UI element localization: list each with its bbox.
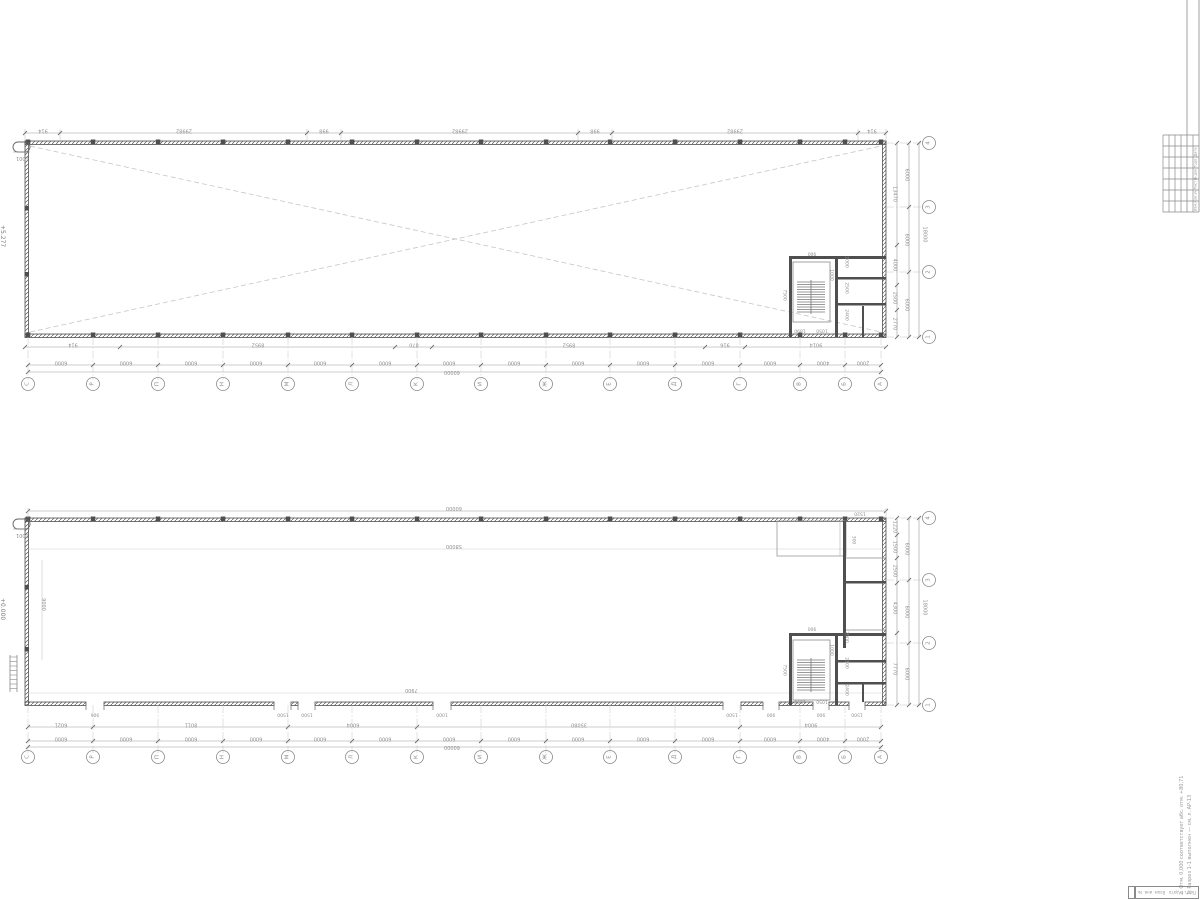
note-line-1: 1. Разрез 1-1 выполнен — см. л. АР-13: [1187, 793, 1194, 895]
titleblock-strip: Взам. инв. № Подп. и дата: [1128, 886, 1199, 899]
note-line-2: 2. Отм. 0,000 соответствует абс. отм. +8…: [1179, 793, 1186, 895]
top-total-dim-lower: 60000: [446, 505, 462, 510]
corner-detail-label-lower: 1001: [16, 532, 29, 537]
strip-cell-podp: Подп. и дата: [1167, 887, 1198, 898]
drawing-sheet: 9142998299829982998299829149148952870895…: [0, 0, 1200, 900]
titleblock-linework: [22, 0, 1200, 764]
elevation-mark-upper: +5.277: [0, 225, 5, 247]
inner-left-dim-lower: 9000: [40, 598, 45, 611]
right-total-dim-lower: 18000: [921, 600, 926, 616]
inner-dim-lower: 58000: [446, 543, 462, 548]
strip-cell-vzam: Взам. инв. №: [1135, 887, 1167, 898]
corner-detail-label-upper: 1001: [16, 155, 29, 160]
plan-linework: [0, 0, 1200, 900]
floor-plan-upper: [13, 129, 923, 380]
inner-dim2-lower: 7900: [405, 687, 418, 692]
total-dim-lower: 60000: [444, 744, 460, 749]
elevation-mark-lower: +0.000: [0, 598, 5, 620]
floor-plan-lower: [10, 508, 923, 753]
total-dim-upper: 60000: [444, 369, 460, 374]
sheet-notes: 1. Разрез 1-1 выполнен — см. л. АР-13 2.…: [1179, 793, 1193, 895]
right-total-dim-upper: 18000: [921, 227, 926, 243]
